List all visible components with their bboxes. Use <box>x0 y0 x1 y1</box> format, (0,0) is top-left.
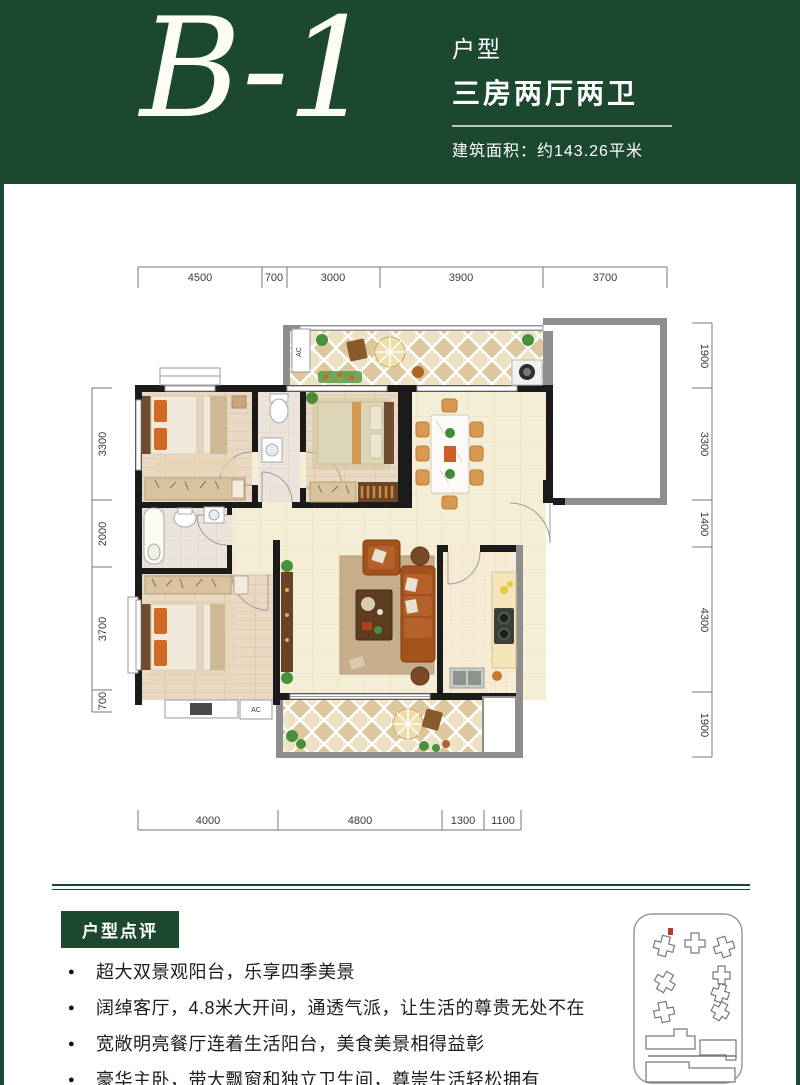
dim-top-1: 700 <box>265 272 283 284</box>
site-minimap <box>634 914 742 1083</box>
dim-right-4: 1900 <box>698 713 710 737</box>
type-label: 户型 <box>452 30 672 64</box>
dim-left-1: 2000 <box>97 522 109 546</box>
bedroom-b <box>306 392 398 502</box>
living-room <box>340 540 435 685</box>
dim-top-4: 3700 <box>593 272 617 284</box>
dim-bottom-1: 4800 <box>348 815 372 827</box>
dim-bottom-3: 1100 <box>491 815 515 827</box>
banner-divider <box>452 125 672 127</box>
review-bullet-2: 阔绰客厅，4.8米大开间，通透气派，让生活的尊贵无处不在 <box>66 990 626 1026</box>
dim-right-2: 1400 <box>698 512 710 536</box>
area-text: 建筑面积：约143.26平米 <box>452 137 672 161</box>
dim-top-2: 3000 <box>321 272 345 284</box>
dim-right-3: 4300 <box>698 608 710 632</box>
dim-left-2: 3700 <box>97 617 109 641</box>
brochure-page: AC AC <box>0 0 800 1085</box>
dim-top-0: 4500 <box>188 272 212 284</box>
dim-left-0: 3300 <box>97 432 109 456</box>
header-banner: B-1 户型 三房两厅两卫 建筑面积：约143.26平米 <box>0 0 800 184</box>
banner-right: 户型 三房两厅两卫 建筑面积：约143.26平米 <box>452 30 672 161</box>
dim-top-3: 3900 <box>449 272 473 284</box>
ac-closet-label: AC <box>296 347 303 357</box>
unit-code: B-1 <box>140 0 372 152</box>
dim-bottom-2: 1300 <box>451 815 475 827</box>
unit-location-marker <box>668 928 673 935</box>
type-value: 三房两厅两卫 <box>452 72 672 112</box>
section-divider <box>52 884 750 890</box>
review-list: 超大双景观阳台，乐享四季美景 阔绰客厅，4.8米大开间，通透气派，让生活的尊贵无… <box>66 954 626 1085</box>
review-title: 户型点评 <box>61 911 179 948</box>
review-bullet-3: 宽敞明亮餐厅连着生活阳台，美食美景相得益彰 <box>66 1026 626 1062</box>
dim-right-1: 3300 <box>698 432 710 456</box>
dim-right-0: 1900 <box>698 344 710 368</box>
review-bullet-4: 豪华主卧，带大飘窗和独立卫生间，尊崇生活轻松拥有 <box>66 1062 626 1085</box>
review-bullet-1: 超大双景观阳台，乐享四季美景 <box>66 954 626 990</box>
dim-left-3: 700 <box>97 692 109 710</box>
dim-bottom-0: 4000 <box>196 815 220 827</box>
ac-platform-label: AC <box>251 707 261 714</box>
